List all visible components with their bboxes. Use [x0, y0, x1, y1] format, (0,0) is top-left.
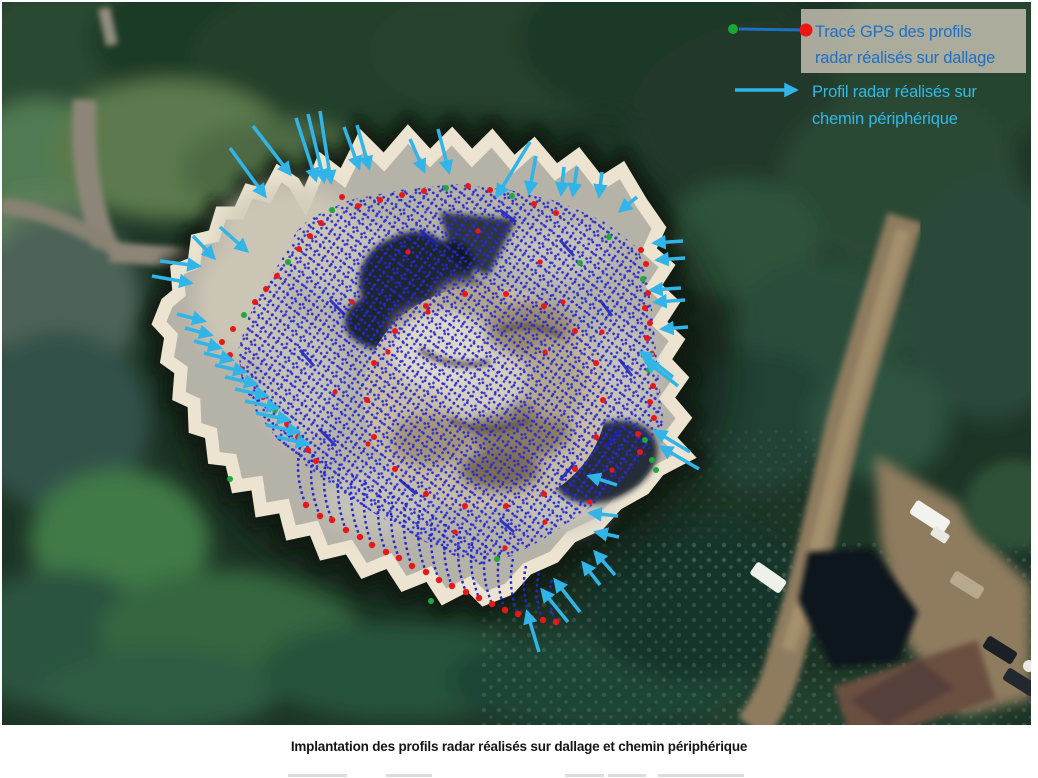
legend-item1-line2: radar réalisés sur dallage: [815, 49, 995, 67]
satellite-photo: Tracé GPS des profils radar réalisés sur…: [2, 2, 1031, 725]
satellite-figure: Tracé GPS des profils radar réalisés sur…: [2, 2, 1031, 725]
legend-item2-line1: Profil radar réalisés sur: [812, 83, 977, 101]
document-page: Tracé GPS des profils radar réalisés sur…: [0, 0, 1038, 778]
legend-gps-line: [739, 29, 805, 30]
legend-item1-line1: Tracé GPS des profils: [815, 23, 972, 41]
red-dot-icon: [800, 24, 813, 37]
figure-caption: Implantation des profils radar réalisés …: [0, 739, 1038, 754]
green-dot-icon: [728, 24, 738, 34]
legend-item2-line2: chemin périphérique: [812, 110, 958, 128]
